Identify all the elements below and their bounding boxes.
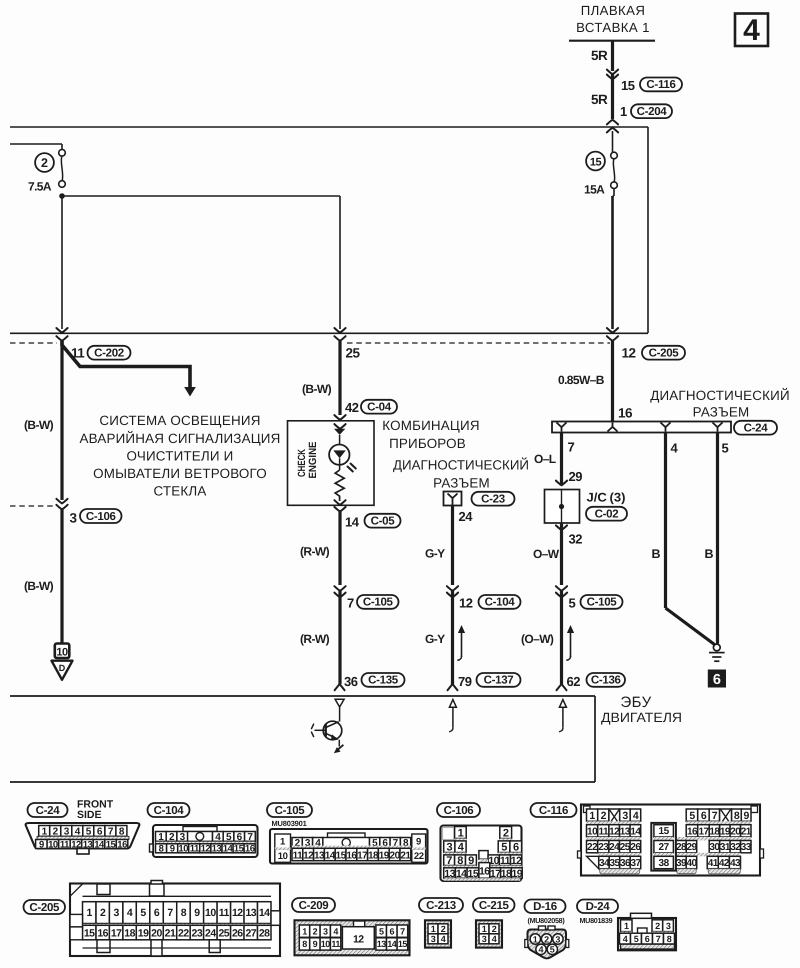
svg-text:8: 8 — [667, 934, 672, 944]
svg-text:7: 7 — [400, 926, 405, 936]
svg-text:29: 29 — [569, 469, 583, 484]
svg-text:C-116: C-116 — [539, 805, 568, 817]
svg-text:12: 12 — [201, 844, 211, 855]
svg-text:32: 32 — [569, 532, 583, 547]
svg-text:O–W: O–W — [533, 547, 560, 561]
svg-text:17: 17 — [698, 827, 709, 838]
svg-text:(B-W): (B-W) — [24, 418, 54, 432]
svg-text:18: 18 — [501, 868, 512, 880]
svg-text:ПЛАВКАЯ: ПЛАВКАЯ — [581, 3, 646, 18]
svg-text:5R: 5R — [591, 92, 608, 107]
svg-text:C-215: C-215 — [479, 900, 510, 912]
svg-text:MU803901: MU803901 — [272, 819, 307, 828]
svg-text:12: 12 — [622, 346, 636, 361]
svg-text:41: 41 — [708, 858, 719, 869]
svg-text:17: 17 — [490, 868, 501, 880]
svg-text:9: 9 — [313, 939, 318, 949]
svg-text:6: 6 — [701, 810, 707, 822]
svg-text:14: 14 — [387, 939, 397, 949]
svg-text:(B-W): (B-W) — [24, 579, 54, 593]
svg-text:2: 2 — [601, 810, 607, 822]
svg-text:2: 2 — [655, 921, 660, 931]
svg-text:14: 14 — [456, 868, 467, 880]
svg-text:2: 2 — [492, 924, 497, 934]
svg-text:20: 20 — [151, 927, 162, 939]
svg-text:8: 8 — [181, 907, 187, 919]
svg-text:14: 14 — [325, 851, 336, 862]
svg-text:19: 19 — [720, 827, 731, 838]
svg-text:ДИАГНОСТИЧЕСКИЙ: ДИАГНОСТИЧЕСКИЙ — [650, 387, 790, 403]
svg-text:15A: 15A — [584, 183, 605, 197]
svg-text:39: 39 — [676, 858, 687, 869]
svg-text:5: 5 — [501, 842, 507, 854]
svg-text:12: 12 — [459, 596, 473, 611]
svg-text:5: 5 — [689, 810, 695, 822]
svg-text:1: 1 — [624, 921, 629, 931]
svg-text:7: 7 — [167, 907, 173, 919]
svg-text:14: 14 — [94, 839, 105, 850]
svg-text:4: 4 — [743, 14, 760, 47]
svg-text:27: 27 — [245, 927, 256, 939]
svg-text:36: 36 — [344, 674, 358, 689]
svg-text:C-202: C-202 — [94, 347, 124, 359]
svg-text:(R-W): (R-W) — [300, 545, 330, 559]
svg-text:5: 5 — [634, 934, 639, 944]
svg-text:10: 10 — [587, 827, 598, 838]
svg-text:C-137: C-137 — [484, 675, 514, 687]
svg-text:26: 26 — [232, 927, 243, 939]
svg-text:11: 11 — [190, 844, 200, 855]
svg-text:16: 16 — [687, 827, 698, 838]
svg-text:15: 15 — [621, 78, 635, 93]
svg-text:4: 4 — [623, 934, 628, 944]
svg-text:6: 6 — [513, 842, 519, 854]
svg-text:1: 1 — [482, 924, 487, 934]
svg-text:19: 19 — [379, 851, 390, 862]
svg-text:O–L: O–L — [534, 452, 556, 466]
svg-text:4: 4 — [127, 907, 133, 919]
svg-text:C-209: C-209 — [299, 900, 329, 912]
svg-text:9: 9 — [194, 907, 200, 919]
svg-text:14: 14 — [223, 844, 234, 855]
svg-text:C-106: C-106 — [444, 805, 474, 817]
svg-text:40: 40 — [686, 858, 697, 869]
svg-text:РАЗЪЕМ: РАЗЪЕМ — [433, 476, 490, 491]
svg-text:1: 1 — [458, 828, 464, 840]
svg-text:SIDE: SIDE — [77, 809, 102, 821]
svg-text:15: 15 — [398, 939, 408, 949]
svg-text:C-135: C-135 — [368, 675, 399, 687]
svg-text:11: 11 — [599, 827, 610, 838]
svg-text:28: 28 — [676, 842, 687, 853]
svg-text:16: 16 — [618, 406, 633, 421]
svg-text:8: 8 — [159, 844, 164, 855]
svg-text:C-23: C-23 — [481, 493, 505, 505]
svg-text:C-205: C-205 — [29, 902, 60, 914]
svg-text:10: 10 — [205, 907, 216, 919]
svg-text:B: B — [705, 547, 714, 561]
svg-text:2: 2 — [503, 828, 509, 840]
svg-text:(O–W): (O–W) — [521, 632, 554, 646]
svg-text:0.85W–B: 0.85W–B — [558, 373, 605, 387]
svg-text:16: 16 — [346, 851, 357, 862]
svg-text:1: 1 — [302, 926, 307, 936]
svg-text:13: 13 — [620, 827, 631, 838]
svg-text:13: 13 — [314, 851, 325, 862]
svg-text:15: 15 — [84, 927, 95, 939]
svg-text:15: 15 — [659, 826, 670, 837]
svg-text:C-24: C-24 — [36, 805, 61, 817]
svg-text:2: 2 — [544, 934, 549, 944]
svg-text:22: 22 — [414, 851, 424, 862]
svg-text:B: B — [652, 547, 661, 561]
svg-text:C-213: C-213 — [426, 900, 456, 912]
svg-text:17: 17 — [357, 851, 368, 862]
svg-text:6: 6 — [154, 907, 160, 919]
svg-text:C-106: C-106 — [86, 511, 116, 523]
svg-text:25: 25 — [218, 927, 229, 939]
svg-text:18: 18 — [368, 851, 379, 862]
svg-text:21: 21 — [165, 927, 176, 939]
svg-text:14: 14 — [630, 827, 641, 838]
svg-text:20: 20 — [390, 851, 401, 862]
svg-text:27: 27 — [659, 842, 670, 853]
svg-text:25: 25 — [620, 842, 631, 853]
svg-text:1: 1 — [533, 934, 538, 944]
svg-text:22: 22 — [178, 927, 189, 939]
svg-text:7: 7 — [347, 596, 354, 611]
svg-text:9: 9 — [416, 837, 421, 848]
svg-text:17: 17 — [111, 927, 122, 939]
svg-text:3: 3 — [622, 810, 628, 822]
svg-text:25: 25 — [346, 346, 361, 361]
svg-text:37: 37 — [630, 858, 641, 869]
svg-text:16: 16 — [97, 927, 108, 939]
svg-text:ДВИГАТЕЛЯ: ДВИГАТЕЛЯ — [601, 710, 682, 725]
svg-text:11: 11 — [60, 839, 70, 850]
svg-text:5: 5 — [569, 596, 576, 611]
svg-text:14: 14 — [345, 515, 360, 530]
svg-text:33: 33 — [741, 842, 752, 853]
svg-text:26: 26 — [630, 842, 641, 853]
svg-text:23: 23 — [192, 927, 203, 939]
svg-text:C-105: C-105 — [275, 805, 306, 817]
svg-text:18: 18 — [709, 827, 720, 838]
svg-text:13: 13 — [245, 907, 256, 919]
svg-text:1: 1 — [620, 104, 627, 119]
svg-text:31: 31 — [720, 842, 731, 853]
svg-text:D-16: D-16 — [533, 901, 557, 913]
svg-text:G-Y: G-Y — [425, 632, 445, 646]
svg-text:24: 24 — [609, 842, 620, 853]
svg-text:43: 43 — [730, 858, 741, 869]
svg-text:2: 2 — [441, 924, 446, 934]
svg-text:КОМБИНАЦИЯ: КОМБИНАЦИЯ — [382, 418, 479, 433]
svg-text:C-205: C-205 — [649, 347, 680, 359]
svg-text:38: 38 — [659, 858, 670, 869]
svg-text:1: 1 — [431, 924, 436, 934]
svg-text:24: 24 — [205, 927, 216, 939]
svg-text:3: 3 — [70, 511, 78, 526]
svg-text:12: 12 — [232, 907, 243, 919]
svg-text:8: 8 — [302, 939, 307, 949]
svg-text:34: 34 — [599, 858, 610, 869]
svg-text:4: 4 — [441, 934, 446, 944]
svg-text:3: 3 — [114, 907, 120, 919]
svg-text:10: 10 — [321, 939, 331, 949]
svg-text:1: 1 — [280, 837, 286, 848]
svg-text:11: 11 — [219, 907, 230, 919]
svg-text:C-02: C-02 — [595, 508, 619, 520]
svg-text:15: 15 — [590, 157, 602, 169]
svg-text:18: 18 — [124, 927, 135, 939]
svg-text:7: 7 — [446, 855, 452, 867]
svg-text:1: 1 — [589, 810, 595, 822]
svg-text:79: 79 — [458, 674, 472, 689]
svg-text:2: 2 — [313, 926, 318, 936]
svg-text:9: 9 — [170, 844, 175, 855]
svg-text:3: 3 — [482, 934, 487, 944]
svg-text:16: 16 — [117, 839, 127, 850]
svg-text:5: 5 — [140, 907, 146, 919]
svg-text:15: 15 — [336, 851, 347, 862]
svg-text:C-04: C-04 — [367, 401, 392, 413]
svg-text:C-204: C-204 — [637, 106, 668, 118]
svg-text:14: 14 — [259, 907, 270, 919]
svg-text:J/C (3): J/C (3) — [587, 491, 626, 505]
svg-text:11: 11 — [500, 855, 511, 867]
svg-text:35: 35 — [609, 858, 620, 869]
svg-text:15: 15 — [468, 868, 479, 880]
svg-text:6: 6 — [390, 926, 395, 936]
svg-text:C-116: C-116 — [646, 79, 675, 91]
svg-text:C-136: C-136 — [591, 675, 621, 687]
svg-text:16: 16 — [479, 866, 490, 878]
svg-text:20: 20 — [730, 827, 741, 838]
svg-text:ENGINE: ENGINE — [307, 442, 319, 479]
svg-text:СИСТЕМА ОСВЕЩЕНИЯ: СИСТЕМА ОСВЕЩЕНИЯ — [99, 413, 260, 428]
svg-text:30: 30 — [709, 842, 720, 853]
svg-text:4: 4 — [333, 926, 338, 936]
svg-text:42: 42 — [345, 400, 359, 415]
svg-text:11: 11 — [293, 851, 304, 862]
svg-text:15: 15 — [106, 839, 117, 850]
svg-text:42: 42 — [719, 858, 730, 869]
svg-text:6: 6 — [645, 934, 650, 944]
svg-text:13: 13 — [212, 844, 222, 855]
svg-text:СТЕКЛА: СТЕКЛА — [153, 484, 206, 499]
svg-text:3: 3 — [431, 934, 436, 944]
svg-text:ОЧИСТИТЕЛИ И: ОЧИСТИТЕЛИ И — [127, 449, 234, 464]
svg-text:4: 4 — [633, 810, 639, 822]
svg-text:2: 2 — [100, 907, 106, 919]
svg-text:D: D — [59, 663, 66, 673]
svg-text:13: 13 — [444, 868, 455, 880]
svg-text:РАЗЪЕМ: РАЗЪЕМ — [693, 405, 750, 420]
svg-text:ОМЫВАТЕЛИ ВЕТРОВОГО: ОМЫВАТЕЛИ ВЕТРОВОГО — [93, 466, 267, 481]
svg-text:C-105: C-105 — [363, 597, 394, 609]
svg-text:3: 3 — [555, 934, 560, 944]
svg-text:9: 9 — [39, 839, 44, 850]
svg-text:3: 3 — [446, 842, 452, 854]
svg-text:9: 9 — [468, 855, 474, 867]
svg-text:5: 5 — [722, 441, 729, 456]
svg-text:АВАРИЙНАЯ СИГНАЛИЗАЦИЯ: АВАРИЙНАЯ СИГНАЛИЗАЦИЯ — [80, 430, 281, 446]
svg-text:12: 12 — [609, 827, 620, 838]
svg-text:C-104: C-104 — [485, 597, 516, 609]
svg-text:29: 29 — [686, 842, 697, 853]
svg-text:16: 16 — [245, 844, 255, 855]
svg-text:8: 8 — [457, 855, 463, 867]
svg-text:1: 1 — [87, 907, 93, 919]
svg-text:7: 7 — [568, 440, 575, 455]
svg-text:32: 32 — [730, 842, 741, 853]
svg-text:21: 21 — [741, 827, 752, 838]
svg-text:C-05: C-05 — [371, 515, 396, 527]
svg-text:10: 10 — [48, 839, 58, 850]
svg-text:ДИАГНОСТИЧЕСКИЙ: ДИАГНОСТИЧЕСКИЙ — [393, 457, 529, 473]
svg-text:36: 36 — [620, 858, 631, 869]
svg-text:(MU802058): (MU802058) — [528, 916, 566, 925]
svg-text:62: 62 — [567, 674, 581, 689]
svg-text:7.5A: 7.5A — [28, 180, 52, 194]
svg-text:11: 11 — [331, 939, 340, 949]
svg-text:C-24: C-24 — [744, 422, 769, 434]
svg-text:ПРИБОРОВ: ПРИБОРОВ — [389, 436, 466, 451]
svg-text:(R-W): (R-W) — [300, 632, 330, 646]
svg-text:21: 21 — [400, 851, 411, 862]
svg-text:7: 7 — [712, 810, 718, 822]
svg-text:24: 24 — [459, 509, 474, 524]
svg-text:19: 19 — [138, 927, 149, 939]
svg-text:13: 13 — [377, 939, 387, 949]
svg-text:6: 6 — [713, 672, 721, 688]
svg-text:5: 5 — [379, 926, 384, 936]
svg-text:15: 15 — [234, 844, 245, 855]
svg-text:7: 7 — [656, 934, 661, 944]
svg-text:D-24: D-24 — [586, 901, 611, 913]
svg-text:C-105: C-105 — [587, 597, 618, 609]
svg-text:5R: 5R — [591, 48, 608, 63]
svg-text:(B-W): (B-W) — [302, 382, 332, 396]
svg-text:12: 12 — [511, 855, 522, 867]
svg-text:12: 12 — [353, 934, 364, 946]
svg-text:19: 19 — [511, 868, 522, 880]
svg-text:3: 3 — [666, 921, 671, 931]
svg-text:10: 10 — [178, 844, 188, 855]
svg-text:3: 3 — [323, 926, 328, 936]
svg-text:23: 23 — [598, 842, 609, 853]
svg-text:9: 9 — [744, 810, 750, 822]
svg-text:22: 22 — [587, 842, 598, 853]
svg-text:10: 10 — [56, 646, 68, 658]
svg-text:2: 2 — [41, 156, 48, 170]
svg-text:4: 4 — [492, 934, 497, 944]
svg-text:ЭБУ: ЭБУ — [620, 694, 651, 711]
svg-text:12: 12 — [303, 851, 314, 862]
svg-text:8: 8 — [734, 810, 740, 822]
svg-text:C-104: C-104 — [154, 805, 185, 817]
svg-text:ВСТАВКА 1: ВСТАВКА 1 — [576, 20, 650, 35]
svg-text:10: 10 — [278, 851, 288, 862]
svg-text:MU801839: MU801839 — [580, 916, 613, 925]
svg-text:4: 4 — [538, 945, 543, 955]
svg-text:G-Y: G-Y — [425, 547, 445, 561]
svg-text:5: 5 — [550, 945, 555, 955]
svg-text:28: 28 — [259, 927, 270, 939]
